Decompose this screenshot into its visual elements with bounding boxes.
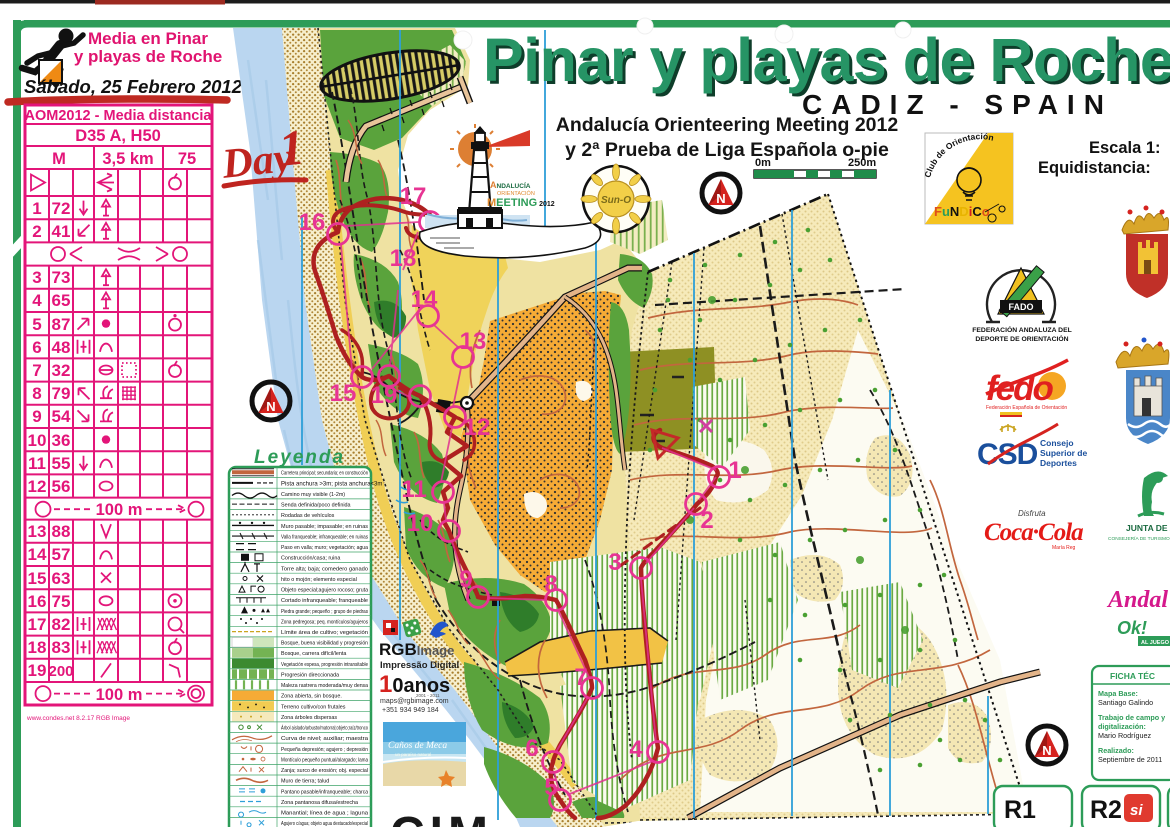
svg-text:Cortado infranqueable; franque: Cortado infranqueable; franqueable <box>281 598 368 604</box>
svg-text:7: 7 <box>32 361 41 380</box>
svg-text:54: 54 <box>52 407 71 426</box>
svg-text:12: 12 <box>464 414 491 441</box>
svg-text:75: 75 <box>178 150 196 168</box>
svg-text:Impressão Digital: Impressão Digital <box>380 660 459 671</box>
svg-text:10: 10 <box>407 510 434 537</box>
svg-text:14: 14 <box>28 545 47 564</box>
svg-text:8: 8 <box>32 384 41 403</box>
svg-text:Equidistancia:: Equidistancia: <box>1038 159 1151 177</box>
svg-text:17: 17 <box>400 183 427 210</box>
svg-text:Pista anchura >3m; pista anchu: Pista anchura >3m; pista anchura<3m <box>281 481 382 487</box>
svg-text:17: 17 <box>28 615 47 634</box>
svg-text:Piedra grande; pequeño ; grupo: Piedra grande; pequeño ; grupo de piedra… <box>281 609 368 615</box>
svg-text:Zona pedregosa; peq. montículo: Zona pedregosa; peq. montículos/agujeros <box>281 619 368 625</box>
svg-text:RGBImage: RGBImage <box>379 640 454 659</box>
svg-text:AOM2012 - Media distancia: AOM2012 - Media distancia <box>25 108 213 124</box>
svg-text:Consejo: Consejo <box>1040 438 1074 448</box>
svg-text:Pantano pasable/infranqueable;: Pantano pasable/infranqueable; charca <box>281 789 368 795</box>
svg-text:Rodadas de vehículos: Rodadas de vehículos <box>281 513 335 519</box>
svg-text:Montículo pequeño puntual/alar: Montículo pequeño puntual/alargado; lama <box>281 757 368 763</box>
svg-text:7: 7 <box>574 664 587 691</box>
svg-text:72: 72 <box>52 199 71 218</box>
svg-text:82: 82 <box>52 615 71 634</box>
svg-text:Sun-O: Sun-O <box>601 195 631 206</box>
svg-text:Zona árboles dispersas: Zona árboles dispersas <box>281 715 337 721</box>
svg-text:FuNDiCo: FuNDiCo <box>934 204 990 219</box>
svg-text:18: 18 <box>390 245 417 272</box>
svg-text:CIM: CIM <box>390 808 493 827</box>
svg-text:Trabajo de campo y: Trabajo de campo y <box>1098 713 1165 722</box>
svg-text:6: 6 <box>32 338 41 357</box>
svg-text:Valla franqueable; infranqueab: Valla franqueable; infranqueable; en rui… <box>281 534 368 540</box>
svg-text:4: 4 <box>629 736 643 763</box>
svg-text:18: 18 <box>28 638 47 657</box>
svg-text:0m: 0m <box>755 157 771 169</box>
svg-text:Agujero c/agua; objeto agua de: Agujero c/agua; objeto agua destacado/es… <box>281 821 368 827</box>
svg-text:Escala 1:: Escala 1: <box>1089 139 1161 157</box>
svg-text:Mapa Base:: Mapa Base: <box>1098 689 1138 698</box>
svg-text:10: 10 <box>28 431 47 450</box>
svg-text:DEPORTE DE ORIENTACIÓN: DEPORTE DE ORIENTACIÓN <box>975 334 1068 343</box>
svg-text:Maleza rastrera moderada/muy d: Maleza rastrera moderada/muy densa <box>281 683 368 689</box>
svg-text:R1: R1 <box>1004 796 1036 824</box>
svg-text:Superior de: Superior de <box>1040 448 1088 458</box>
svg-text:Santiago Galindo: Santiago Galindo <box>1098 698 1153 707</box>
svg-text:Realizado:: Realizado: <box>1098 746 1134 755</box>
svg-text:Manantial; línea de agua ; lag: Manantial; línea de agua ; laguna <box>281 811 368 817</box>
svg-text:100 m: 100 m <box>96 686 143 704</box>
svg-text:11: 11 <box>401 476 426 503</box>
svg-text:48: 48 <box>52 338 71 357</box>
svg-text:75: 75 <box>52 592 71 611</box>
svg-text:+351 934 949 184: +351 934 949 184 <box>382 707 439 714</box>
svg-text:si: si <box>1130 802 1143 819</box>
svg-text:16: 16 <box>28 592 47 611</box>
svg-text:Coca·Cola: Coca·Cola <box>984 519 1083 546</box>
svg-text:36: 36 <box>52 431 71 450</box>
svg-text:AL JUEGO L: AL JUEGO L <box>1141 640 1170 646</box>
svg-text:FEDERACIÓN ANDALUZA DEL: FEDERACIÓN ANDALUZA DEL <box>972 325 1072 334</box>
svg-text:FICHA TÉC: FICHA TÉC <box>1110 671 1155 681</box>
svg-text:maps@rgbimage.com: maps@rgbimage.com <box>380 698 449 705</box>
svg-text:15: 15 <box>330 380 357 407</box>
svg-text:Bosque, buena visibilidad y pr: Bosque, buena visibilidad y progresión <box>281 641 368 647</box>
svg-text:Zona abierta, sin bosque.: Zona abierta, sin bosque. <box>281 694 342 700</box>
svg-text:Terreno cultivo/con frutales: Terreno cultivo/con frutales <box>281 704 346 710</box>
svg-text:Zanja; surco de erosión; obj.: Zanja; surco de erosión; obj. especial <box>281 768 368 774</box>
svg-text:65: 65 <box>52 291 71 310</box>
svg-text:83: 83 <box>52 638 71 657</box>
svg-text:Mario Rodríguez: Mario Rodríguez <box>1098 731 1152 740</box>
svg-text:N: N <box>716 191 725 206</box>
svg-text:Paso en valla; muro; vegetació: Paso en valla; muro; vegetación; agua <box>281 545 368 551</box>
svg-text:Senda definida/poco definida: Senda definida/poco definida <box>281 503 351 509</box>
svg-text:digitalización:: digitalización: <box>1098 722 1146 731</box>
svg-text:200: 200 <box>48 663 73 680</box>
svg-text:3: 3 <box>32 268 41 287</box>
svg-text:Media en Pinar: Media en Pinar <box>88 29 208 48</box>
svg-text:Curva de nivel; auxiliar; maes: Curva de nivel; auxiliar; maestra <box>281 736 368 742</box>
svg-text:Muro pasable; impasable; en ru: Muro pasable; impasable; en ruinas <box>281 524 368 530</box>
svg-text:19: 19 <box>28 661 47 680</box>
svg-text:8: 8 <box>544 571 557 598</box>
svg-text:JUNTA DE A: JUNTA DE A <box>1126 523 1170 533</box>
svg-text:73: 73 <box>52 268 71 287</box>
svg-text:Pequeña depresión; agujero ; d: Pequeña depresión; agujero ; depresión <box>281 747 368 753</box>
svg-text:Carretera principal; secundari: Carretera principal; secundaria; en cons… <box>281 471 368 477</box>
svg-text:4: 4 <box>32 291 42 310</box>
svg-text:32: 32 <box>52 361 71 380</box>
svg-text:M: M <box>52 150 66 168</box>
svg-text:3,5 km: 3,5 km <box>102 150 153 168</box>
svg-text:y playas de Roche: y playas de Roche <box>74 47 222 66</box>
svg-text:2: 2 <box>32 222 41 241</box>
svg-text:Bosque, carrera difícil/lenta: Bosque, carrera difícil/lenta <box>281 651 346 657</box>
svg-text:Límite área de cultivo; vegeta: Límite área de cultivo; vegetación <box>281 630 368 636</box>
svg-text:1: 1 <box>728 457 741 484</box>
svg-text:Disfruta: Disfruta <box>1018 509 1046 518</box>
svg-text:Deportes: Deportes <box>1040 458 1077 468</box>
svg-text:5: 5 <box>32 315 41 334</box>
svg-text:Zona pantanosa difusa/estrecha: Zona pantanosa difusa/estrecha <box>281 800 358 806</box>
svg-text:6: 6 <box>525 735 538 762</box>
svg-text:88: 88 <box>52 522 71 541</box>
svg-text:ORIENTACIÓN: ORIENTACIÓN <box>497 190 535 197</box>
svg-text:19: 19 <box>371 382 398 409</box>
svg-text:Camino muy visible (1-2m): Camino muy visible (1-2m) <box>281 492 345 498</box>
svg-text:Septiembre de 2011: Septiembre de 2011 <box>1098 755 1162 764</box>
svg-text:13: 13 <box>460 328 487 355</box>
svg-text:15: 15 <box>28 569 47 588</box>
svg-text:Progresión direccionada: Progresión direccionada <box>281 673 339 679</box>
svg-text:Torre alta; baja; comedero gan: Torre alta; baja; comedero ganado <box>281 566 368 572</box>
svg-text:Vegetación espesa, progresión: Vegetación espesa, progresión intransita… <box>281 662 368 668</box>
svg-text:Federación Española de Orienta: Federación Española de Orientación <box>986 405 1067 411</box>
svg-text:www.condes.net 8.2.17 RGB Imag: www.condes.net 8.2.17 RGB Image <box>26 715 130 722</box>
svg-text:CONSEJERÍA DE TURISMO,: CONSEJERÍA DE TURISMO, <box>1108 535 1170 542</box>
svg-text:Andalucía Orienteering Meeting: Andalucía Orienteering Meeting 2012 <box>556 114 899 136</box>
svg-text:57: 57 <box>52 545 71 564</box>
svg-text:55: 55 <box>52 454 71 473</box>
svg-text:1: 1 <box>32 199 41 218</box>
svg-text:56: 56 <box>52 477 71 496</box>
svg-text:Andal: Andal <box>1106 587 1168 613</box>
svg-text:Sábado, 25 Febrero 2012: Sábado, 25 Febrero 2012 <box>24 76 243 97</box>
svg-text:D35 A, H50: D35 A, H50 <box>75 127 161 145</box>
svg-text:Muro de tierra; talud: Muro de tierra; talud <box>281 779 329 785</box>
svg-text:y 2ª Prueba de Liga Española o: y 2ª Prueba de Liga Española o-pie <box>565 139 889 161</box>
svg-text:Caños de Meca: Caños de Meca <box>388 741 447 751</box>
svg-text:11: 11 <box>28 454 46 473</box>
svg-text:Ok!: Ok! <box>1117 618 1147 638</box>
svg-text:14: 14 <box>411 286 438 313</box>
svg-text:13: 13 <box>28 522 47 541</box>
svg-text:100 m: 100 m <box>96 501 143 519</box>
svg-text:N: N <box>266 399 275 414</box>
svg-text:250m: 250m <box>848 157 876 169</box>
svg-text:Construcción/casa; ruina: Construcción/casa; ruina <box>281 556 340 562</box>
svg-text:CSD: CSD <box>977 438 1038 471</box>
svg-text:N: N <box>1042 743 1051 758</box>
svg-text:Pinar y playas de Roche: Pinar y playas de Roche <box>483 26 1170 94</box>
svg-text:hito o mojón; elemento especia: hito o mojón; elemento especial <box>281 577 357 583</box>
svg-text:2: 2 <box>700 507 713 534</box>
svg-text:87: 87 <box>52 315 71 334</box>
svg-text:12: 12 <box>28 477 47 496</box>
svg-text:79: 79 <box>52 384 71 403</box>
svg-text:63: 63 <box>52 569 71 588</box>
svg-text:5: 5 <box>544 774 557 801</box>
svg-text:FADO: FADO <box>1008 302 1033 312</box>
svg-text:María Reg: María Reg <box>1052 545 1076 551</box>
svg-text:41: 41 <box>52 222 71 241</box>
svg-text:Objeto especial;agujero rocoso: Objeto especial;agujero rocoso; gruta <box>281 588 368 594</box>
svg-text:16: 16 <box>299 209 326 236</box>
svg-text:Leyenda: Leyenda <box>254 447 345 468</box>
svg-text:un paraíso natural: un paraíso natural <box>395 752 431 757</box>
svg-text:3: 3 <box>608 549 621 576</box>
svg-text:R2: R2 <box>1090 796 1122 824</box>
svg-text:Árbol aislado/arbusto/matorral: Árbol aislado/arbusto/matorral;objeto;ra… <box>281 725 368 732</box>
svg-text:9: 9 <box>32 407 41 426</box>
svg-text:9: 9 <box>459 566 472 593</box>
